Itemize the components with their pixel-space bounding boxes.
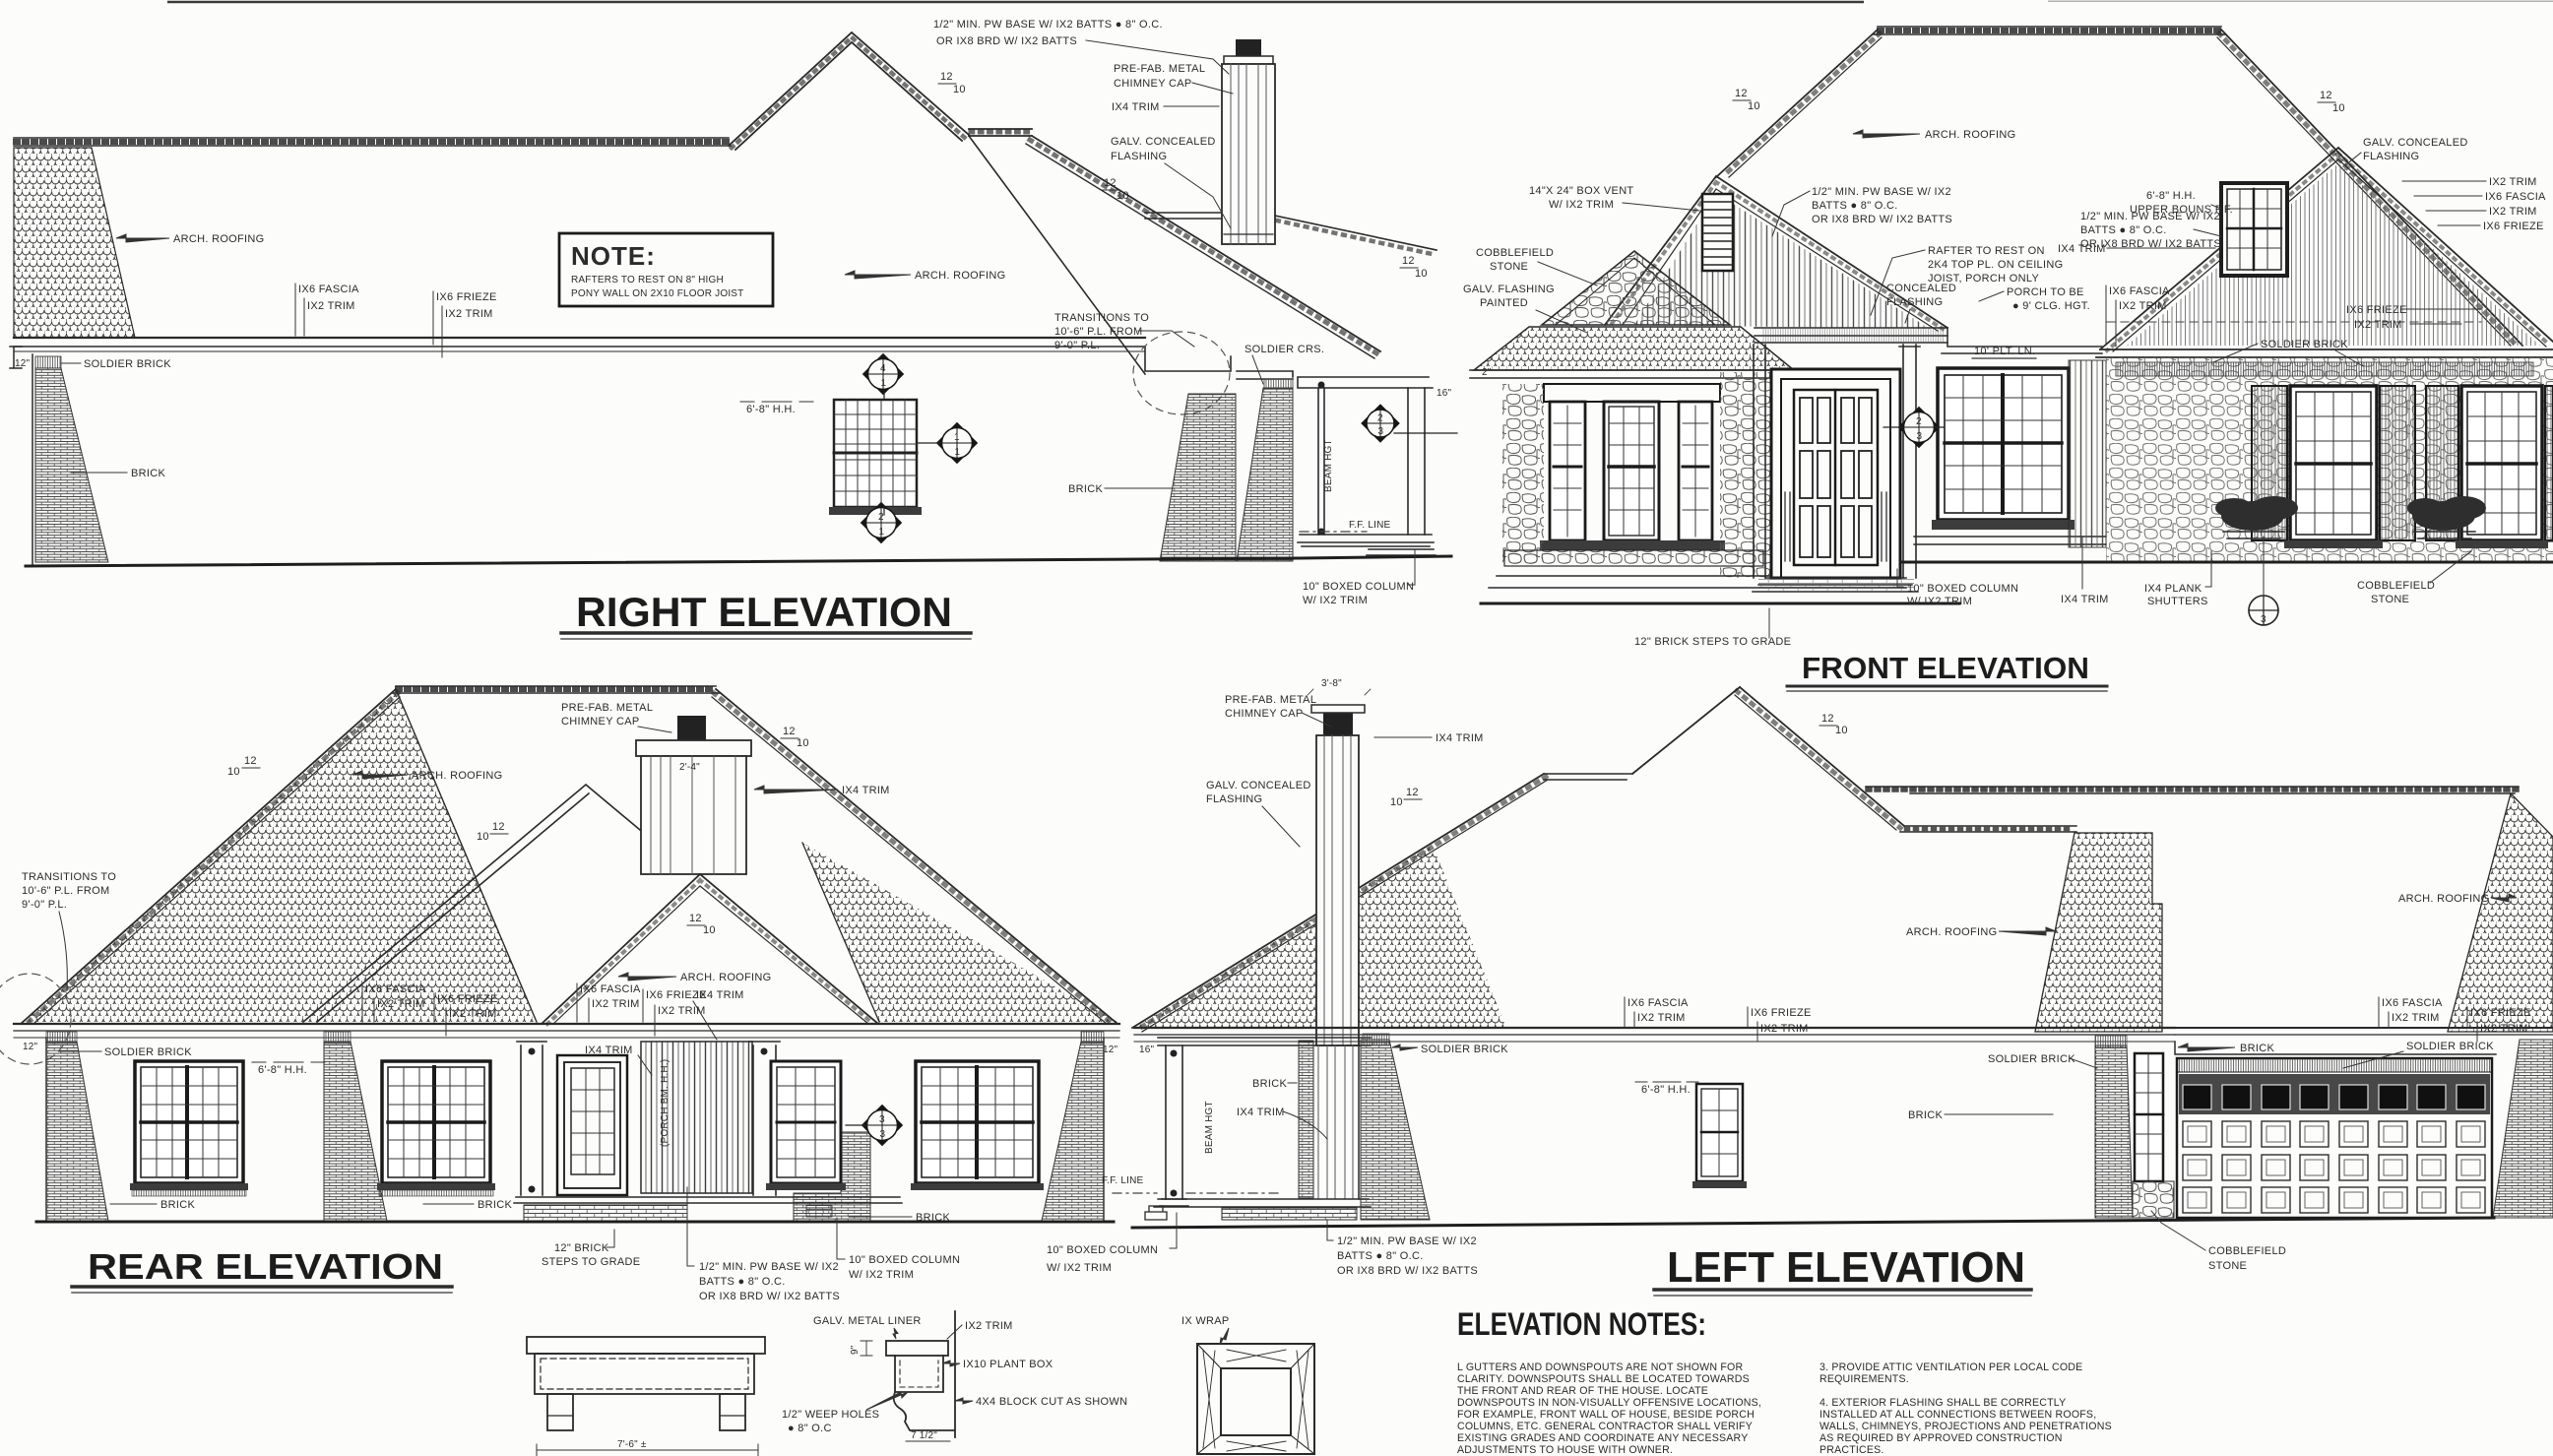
svg-text:CLARITY. DOWNSPOUTS SHALL BE L: CLARITY. DOWNSPOUTS SHALL BE LOCATED TOW… [1457,1373,1750,1385]
svg-text:PONY WALL ON 2X10 FLOOR JOIST: PONY WALL ON 2X10 FLOOR JOIST [571,288,743,299]
svg-text:6'-8" H.H.: 6'-8" H.H. [2146,190,2196,202]
svg-text:BATTS ● 8" O.C.: BATTS ● 8" O.C. [2080,224,2167,236]
svg-text:PORCH TO BE: PORCH TO BE [2007,286,2084,298]
svg-text:IX2 TRIM: IX2 TRIM [377,998,425,1010]
svg-text:FRONT ELEVATION: FRONT ELEVATION [1802,651,2089,685]
svg-text:6'-8" H.H.: 6'-8" H.H. [258,1064,307,1076]
svg-text:IX2 TRIM: IX2 TRIM [2489,176,2537,188]
svg-text:REQUIREMENTS.: REQUIREMENTS. [1819,1373,1909,1385]
svg-text:2: 2 [878,512,884,523]
svg-text:3: 3 [879,1114,885,1125]
svg-text:1/2" MIN. PW BASE W/ IX2: 1/2" MIN. PW BASE W/ IX2 [1812,186,1951,198]
svg-text:10' PLT. LN.: 10' PLT. LN. [1974,346,2035,357]
svg-text:10: 10 [1748,100,1760,112]
svg-text:GALV. CONCEALED: GALV. CONCEALED [2363,137,2468,149]
svg-text:TRANSITIONS TO: TRANSITIONS TO [1054,312,1149,324]
svg-text:ARCH. ROOFING: ARCH. ROOFING [1925,129,2016,141]
svg-text:ADJUSTMENTS TO HOUSE WITH OWNE: ADJUSTMENTS TO HOUSE WITH OWNER. [1457,1444,1673,1456]
svg-text:IX6 FRIEZE: IX6 FRIEZE [1751,1007,1812,1019]
svg-text:ARCH. ROOFING: ARCH. ROOFING [2398,893,2490,905]
svg-text:1: 1 [881,378,887,389]
svg-text:1/2" MIN. PW BASE W/ IX2: 1/2" MIN. PW BASE W/ IX2 [699,1261,839,1273]
svg-text:IX6 FASCIA: IX6 FASCIA [298,284,359,295]
svg-text:IX6 FASCIA: IX6 FASCIA [2109,285,2170,297]
svg-text:12: 12 [2320,90,2332,101]
svg-text:WALLS, CHIMNEYS, PROJECTIONS A: WALLS, CHIMNEYS, PROJECTIONS AND PENETRA… [1819,1421,2112,1432]
svg-text:FLASHING: FLASHING [2363,151,2419,162]
svg-text:ARCH. ROOFING: ARCH. ROOFING [412,770,503,782]
svg-text:2: 2 [1916,416,1922,427]
svg-text:10: 10 [1117,190,1129,202]
svg-text:IX6 FASCIA: IX6 FASCIA [580,983,641,995]
svg-text:IX2 TRIM: IX2 TRIM [2354,319,2402,331]
svg-text:9'-0" P.L.: 9'-0" P.L. [1054,340,1100,351]
svg-text:DOWNSPOUTS IN NON-VISUALLY OFF: DOWNSPOUTS IN NON-VISUALLY OFFENSIVE LOC… [1457,1397,1761,1409]
svg-text:EXISTING GRADES AND COORDINATE: EXISTING GRADES AND COORDINATE ANY NECES… [1457,1432,1749,1444]
svg-text:12": 12" [15,358,31,369]
svg-text:IX6 FASCIA: IX6 FASCIA [365,983,426,995]
svg-text:IX2 TRIM: IX2 TRIM [2489,206,2537,218]
svg-text:BATTS ● 8" O.C.: BATTS ● 8" O.C. [699,1276,786,1288]
svg-text:10: 10 [477,831,489,843]
svg-text:6'-8" H.H.: 6'-8" H.H. [746,404,796,415]
svg-text:14"X 24" BOX VENT: 14"X 24" BOX VENT [1529,185,1633,197]
svg-text:IX4 PLANK: IX4 PLANK [2144,583,2202,595]
svg-text:12" BRICK: 12" BRICK [554,1242,609,1254]
svg-text:RAFTER TO REST ON: RAFTER TO REST ON [1928,245,2045,257]
svg-text:12: 12 [783,726,796,737]
svg-text:9": 9" [850,1345,861,1355]
svg-text:BATTS ● 8" O.C.: BATTS ● 8" O.C. [1812,200,1898,212]
svg-text:BRICK: BRICK [2240,1043,2274,1054]
svg-text:10" BOXED COLUMN: 10" BOXED COLUMN [1047,1244,1158,1256]
svg-text:1/2" MIN. PW BASE W/ IX2 BATTS: 1/2" MIN. PW BASE W/ IX2 BATTS ● 8" O.C. [933,19,1163,31]
svg-text:GALV. FLASHING: GALV. FLASHING [1463,284,1555,295]
svg-text:ARCH. ROOFING: ARCH. ROOFING [1906,926,1998,938]
svg-text:3: 3 [880,1129,886,1140]
svg-text:IX2 TRIM: IX2 TRIM [445,308,493,320]
svg-text:IX4 TRIM: IX4 TRIM [1436,732,1484,744]
svg-text:4X4 BLOCK CUT AS SHOWN: 4X4 BLOCK CUT AS SHOWN [976,1396,1127,1408]
svg-text:IX WRAP: IX WRAP [1181,1315,1230,1327]
svg-text:SOLDIER BRICK: SOLDIER BRICK [2261,339,2348,350]
svg-text:CHIMNEY CAP: CHIMNEY CAP [1225,708,1304,720]
svg-text:6'-8" H.H.: 6'-8" H.H. [1641,1084,1691,1096]
svg-text:ARCH. ROOFING: ARCH. ROOFING [173,233,265,245]
svg-text:3: 3 [1378,426,1384,437]
svg-text:9'-0" P.L.: 9'-0" P.L. [22,899,67,911]
svg-text:7'-6" ±: 7'-6" ± [617,1439,647,1450]
svg-text:12: 12 [492,821,505,833]
svg-text:12" BRICK STEPS TO GRADE: 12" BRICK STEPS TO GRADE [1634,636,1791,648]
svg-text:FLASHING: FLASHING [1111,151,1167,162]
svg-text:BEAM HGT: BEAM HGT [1323,439,1334,492]
svg-text:10" BOXED COLUMN: 10" BOXED COLUMN [1303,581,1414,593]
svg-text:IX4 TRIM: IX4 TRIM [2058,243,2106,255]
svg-text:IX2 TRIM: IX2 TRIM [307,300,355,312]
svg-text:RIGHT ELEVATION: RIGHT ELEVATION [576,589,952,635]
svg-text:12: 12 [940,71,953,83]
svg-text:BRICK: BRICK [131,468,165,479]
svg-text:OR IX8 BRD W/ IX2 BATTS: OR IX8 BRD W/ IX2 BATTS [699,1291,840,1302]
svg-text:1: 1 [955,447,961,458]
svg-text:SOLDIER BRICK: SOLDIER BRICK [84,358,171,370]
svg-text:10" BOXED COLUMN: 10" BOXED COLUMN [1907,583,2018,595]
svg-text:BRICK: BRICK [478,1199,512,1211]
svg-text:IX2 TRIM: IX2 TRIM [592,998,640,1010]
svg-text:IX4 TRIM: IX4 TRIM [842,785,890,796]
svg-text:W/ IX2 TRIM: W/ IX2 TRIM [1303,595,1368,606]
svg-text:10: 10 [1390,796,1403,808]
svg-text:PRE-FAB. METAL: PRE-FAB. METAL [1225,694,1316,706]
svg-text:BRICK: BRICK [916,1212,950,1224]
svg-text:FLASHING: FLASHING [1886,296,1943,308]
svg-text:10: 10 [1835,725,1848,736]
svg-text:REAR ELEVATION: REAR ELEVATION [88,1246,443,1287]
svg-text:10: 10 [953,84,966,95]
svg-text:(PORCH BM. H.H.): (PORCH BM. H.H.) [660,1059,670,1147]
svg-text:FOR EXAMPLE, FRONT WALL OF HOU: FOR EXAMPLE, FRONT WALL OF HOUSE, BESIDE… [1457,1409,1755,1421]
svg-text:BRICK: BRICK [160,1199,195,1211]
svg-text:W/ IX2 TRIM: W/ IX2 TRIM [1907,596,1972,607]
svg-text:1: 1 [954,432,960,443]
svg-text:BRICK: BRICK [1252,1078,1287,1090]
svg-text:10'-6" P.L. FROM: 10'-6" P.L. FROM [1054,326,1142,338]
svg-text:● 9' CLG. HGT.: ● 9' CLG. HGT. [2012,300,2090,312]
svg-text:4. EXTERIOR FLASHING SHALL BE: 4. EXTERIOR FLASHING SHALL BE CORRECTLY [1819,1397,2066,1409]
svg-text:16": 16" [1436,388,1452,399]
svg-text:F.F. LINE: F.F. LINE [1102,1175,1143,1186]
svg-text:SHUTTERS: SHUTTERS [2147,596,2208,607]
svg-text:12: 12 [1104,177,1117,189]
svg-text:BRICK: BRICK [1908,1109,1943,1121]
svg-text:IX4 TRIM: IX4 TRIM [696,989,744,1001]
svg-text:STEPS TO GRADE: STEPS TO GRADE [542,1256,640,1268]
svg-text:CHIMNEY CAP: CHIMNEY CAP [1114,78,1192,90]
svg-text:INSTALLED AT ALL CONNECTIONS B: INSTALLED AT ALL CONNECTIONS BETWEEN ROO… [1819,1409,2096,1421]
svg-text:IX2 TRIM: IX2 TRIM [1760,1023,1809,1035]
svg-text:OR IX8 BRD W/ IX2 BATTS: OR IX8 BRD W/ IX2 BATTS [936,35,1077,47]
svg-text:IX4 TRIM: IX4 TRIM [2061,594,2109,605]
svg-text:BRICK: BRICK [1068,483,1103,495]
svg-text:IX2 TRIM: IX2 TRIM [2392,1012,2440,1024]
svg-text:IX2 TRIM: IX2 TRIM [658,1005,706,1017]
svg-text:LEFT ELEVATION: LEFT ELEVATION [1667,1243,2025,1292]
svg-text:IX6 FASCIA: IX6 FASCIA [2485,191,2546,203]
svg-text:PRE-FAB. METAL: PRE-FAB. METAL [561,702,653,714]
svg-text:IX2 TRIM: IX2 TRIM [2480,1023,2528,1035]
svg-text:1/2" WEEP HOLES: 1/2" WEEP HOLES [782,1409,879,1421]
svg-text:SOLDIER BRICK: SOLDIER BRICK [104,1046,192,1058]
svg-text:THE FRONT AND REAR OF THE HOUS: THE FRONT AND REAR OF THE HOUSE. LOCATE [1457,1385,1708,1397]
svg-text:STONE: STONE [2371,594,2409,605]
svg-text:3'-8": 3'-8" [1321,678,1342,689]
svg-text:IX6 FRIEZE: IX6 FRIEZE [2483,221,2544,232]
svg-text:IX4 TRIM: IX4 TRIM [585,1045,633,1056]
svg-text:RAFTERS TO REST ON 8" HIGH: RAFTERS TO REST ON 8" HIGH [571,275,724,285]
svg-text:1: 1 [879,527,885,538]
svg-text:CONCEALED: CONCEALED [1886,283,1956,294]
svg-text:2: 2 [1377,413,1383,424]
svg-text:GALV. CONCEALED: GALV. CONCEALED [1206,780,1311,791]
svg-text:12: 12 [244,755,257,767]
svg-text:COLUMNS, ETC. GENERAL CONTRACT: COLUMNS, ETC. GENERAL CONTRACTOR SHALL V… [1457,1421,1753,1432]
svg-text:BATTS ● 8" O.C.: BATTS ● 8" O.C. [1337,1250,1424,1262]
svg-text:12": 12" [1103,1045,1118,1055]
svg-text:COBBLEFIELD: COBBLEFIELD [1476,247,1554,259]
svg-text:2": 2" [1482,367,1492,378]
svg-text:FLASHING: FLASHING [1206,793,1262,805]
svg-text:2'-4": 2'-4" [679,762,700,773]
svg-text:COBBLEFIELD: COBBLEFIELD [2208,1245,2286,1257]
svg-text:STONE: STONE [2208,1260,2247,1272]
svg-text:GALV. METAL LINER: GALV. METAL LINER [813,1315,922,1327]
svg-text:IX2 TRIM: IX2 TRIM [2119,300,2167,312]
svg-text:12: 12 [689,913,702,924]
svg-text:PRACTICES.: PRACTICES. [1819,1444,1884,1456]
svg-text:IX2 TRIM: IX2 TRIM [449,1008,497,1020]
svg-text:SOLDIER BRICK: SOLDIER BRICK [2406,1041,2494,1052]
svg-text:IX6 FRIEZE: IX6 FRIEZE [2346,304,2407,316]
svg-text:12: 12 [1402,255,1415,267]
svg-text:GALV. CONCEALED: GALV. CONCEALED [1111,136,1216,148]
svg-text:UPPER BOUNS F.F.: UPPER BOUNS F.F. [2130,204,2233,216]
svg-text:IX6 FASCIA: IX6 FASCIA [1628,997,1689,1009]
svg-text:IX4 TRIM: IX4 TRIM [1237,1107,1285,1118]
svg-text:SOLDIER BRICK: SOLDIER BRICK [1988,1053,2075,1065]
svg-text:12": 12" [23,1042,38,1052]
svg-text:3. PROVIDE ATTIC VENTILATION P: 3. PROVIDE ATTIC VENTILATION PER LOCAL C… [1819,1361,2082,1373]
svg-text:IX2 TRIM: IX2 TRIM [965,1320,1013,1332]
svg-text:12: 12 [1406,787,1419,798]
svg-text:NOTE:: NOTE: [571,241,656,271]
svg-text:7 1/2": 7 1/2" [911,1430,937,1441]
svg-text:STONE: STONE [1490,261,1528,273]
svg-text:12: 12 [1821,713,1834,725]
svg-text:IX6 FRIEZE: IX6 FRIEZE [436,291,497,303]
svg-text:10: 10 [2332,102,2345,114]
svg-text:AS REQUIRED BY APPROVED CONSTR: AS REQUIRED BY APPROVED CONSTRUCTION [1819,1432,2063,1444]
svg-text:OR IX8 BRD W/ IX2 BATTS: OR IX8 BRD W/ IX2 BATTS [1812,214,1952,225]
svg-text:OR IX8 BRD W/ IX2 BATTS: OR IX8 BRD W/ IX2 BATTS [1337,1265,1478,1277]
svg-text:10: 10 [227,766,240,778]
svg-text:10: 10 [797,737,809,749]
svg-text:ARCH. ROOFING: ARCH. ROOFING [680,972,772,983]
svg-text:IX6 FRIEZE: IX6 FRIEZE [437,993,498,1005]
svg-text:10: 10 [1415,268,1428,280]
svg-text:IX6 FASCIA: IX6 FASCIA [2382,997,2443,1009]
svg-text:3: 3 [1917,431,1923,442]
svg-text:IX2 TRIM: IX2 TRIM [1637,1012,1686,1024]
svg-text:16": 16" [1139,1045,1155,1055]
svg-text:2K4 TOP PL. ON CEILING: 2K4 TOP PL. ON CEILING [1928,259,2063,271]
svg-text:4: 4 [880,363,886,374]
svg-text:W/ IX2 TRIM: W/ IX2 TRIM [1047,1262,1112,1274]
svg-text:1/2" MIN. PW BASE W/ IX2: 1/2" MIN. PW BASE W/ IX2 [1337,1235,1477,1247]
svg-text:L GUTTERS AND DOWNSPOUTS ARE N: L GUTTERS AND DOWNSPOUTS ARE NOT SHOWN F… [1457,1361,1743,1373]
svg-text:10" BOXED COLUMN: 10" BOXED COLUMN [849,1254,960,1266]
svg-text:3: 3 [2261,614,2266,625]
svg-text:PAINTED: PAINTED [1480,297,1528,309]
svg-text:W/ IX2 TRIM: W/ IX2 TRIM [849,1269,914,1281]
svg-text:IX4 TRIM: IX4 TRIM [1112,101,1160,113]
svg-text:F.F. LINE: F.F. LINE [1349,520,1390,531]
svg-text:TRANSITIONS TO: TRANSITIONS TO [22,871,116,883]
svg-text:ELEVATION NOTES:: ELEVATION NOTES: [1457,1306,1706,1342]
svg-text:10: 10 [703,924,716,936]
svg-text:12: 12 [1735,88,1748,99]
svg-text:SOLDIER CRS.: SOLDIER CRS. [1245,344,1324,355]
svg-text:SOLDIER BRICK: SOLDIER BRICK [1421,1044,1508,1055]
svg-text:IX10 PLANT BOX: IX10 PLANT BOX [963,1359,1053,1370]
svg-text:IX6 FRIEZE: IX6 FRIEZE [2470,1007,2531,1019]
svg-text:COBBLEFIELD: COBBLEFIELD [2357,580,2435,592]
svg-text:● 8" O.C: ● 8" O.C [788,1423,832,1434]
svg-text:W/ IX2 TRIM: W/ IX2 TRIM [1549,199,1614,211]
svg-text:ARCH. ROOFING: ARCH. ROOFING [915,270,1006,282]
svg-text:10'-6" P.L. FROM: 10'-6" P.L. FROM [22,885,109,897]
svg-text:BEAM HGT: BEAM HGT [1204,1101,1215,1154]
svg-text:PRE-FAB. METAL: PRE-FAB. METAL [1114,63,1205,75]
svg-text:CHIMNEY CAP: CHIMNEY CAP [561,716,640,728]
